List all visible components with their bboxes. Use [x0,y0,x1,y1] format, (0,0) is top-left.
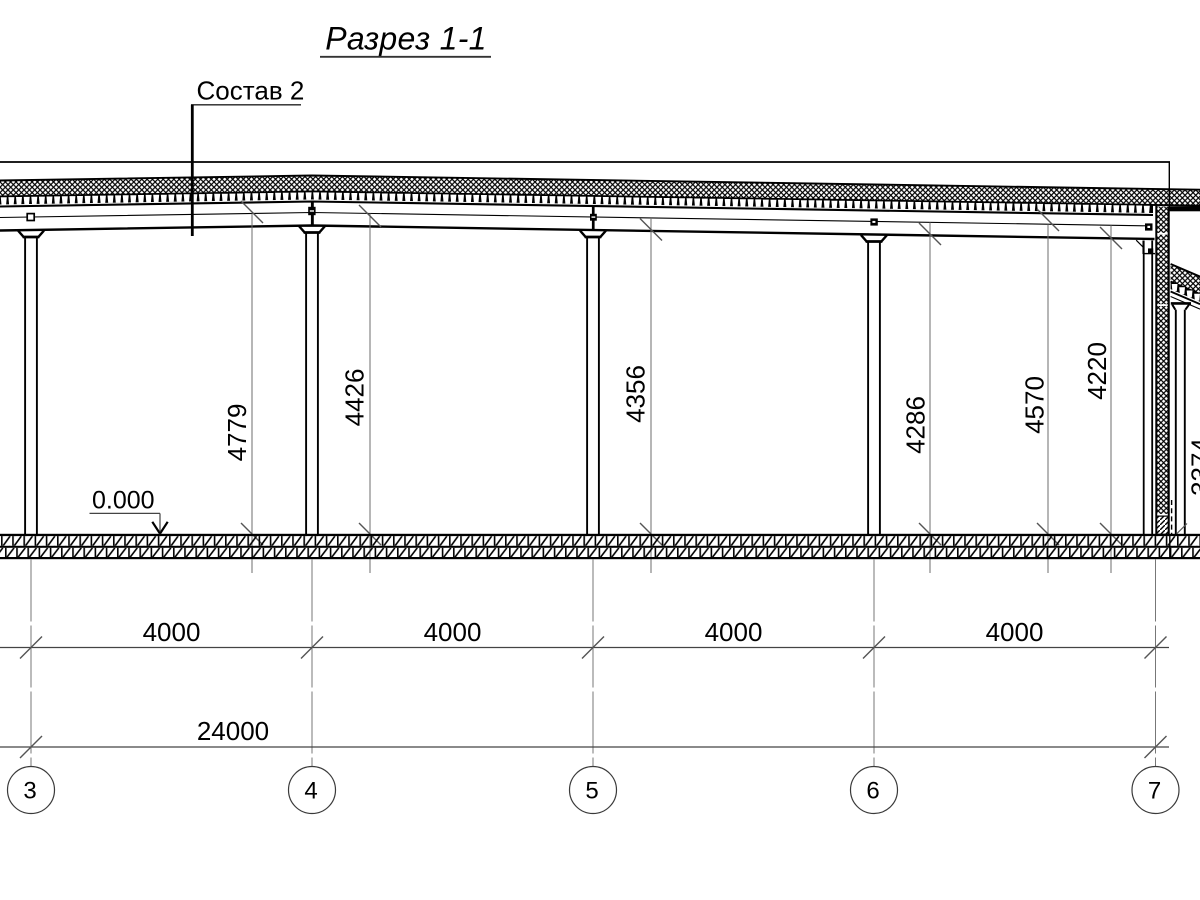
svg-text:4000: 4000 [143,617,201,647]
svg-text:24000: 24000 [197,716,269,746]
svg-text:3: 3 [23,778,36,805]
svg-text:4779: 4779 [222,404,252,462]
svg-text:4220: 4220 [1082,342,1112,400]
svg-text:6: 6 [866,778,879,805]
svg-text:5: 5 [585,778,598,805]
svg-text:4000: 4000 [705,617,763,647]
svg-text:7: 7 [1148,778,1161,805]
svg-text:4356: 4356 [621,365,651,423]
svg-text:Разрез 1-1: Разрез 1-1 [325,21,487,57]
svg-text:3374: 3374 [1185,438,1200,496]
svg-text:4: 4 [304,778,317,805]
svg-text:0.000: 0.000 [92,487,155,515]
svg-text:Состав 2: Состав 2 [197,76,305,106]
svg-text:4000: 4000 [986,617,1044,647]
svg-text:4286: 4286 [901,396,931,454]
svg-text:4426: 4426 [340,369,370,427]
svg-text:4000: 4000 [424,617,482,647]
svg-text:4570: 4570 [1020,376,1050,434]
